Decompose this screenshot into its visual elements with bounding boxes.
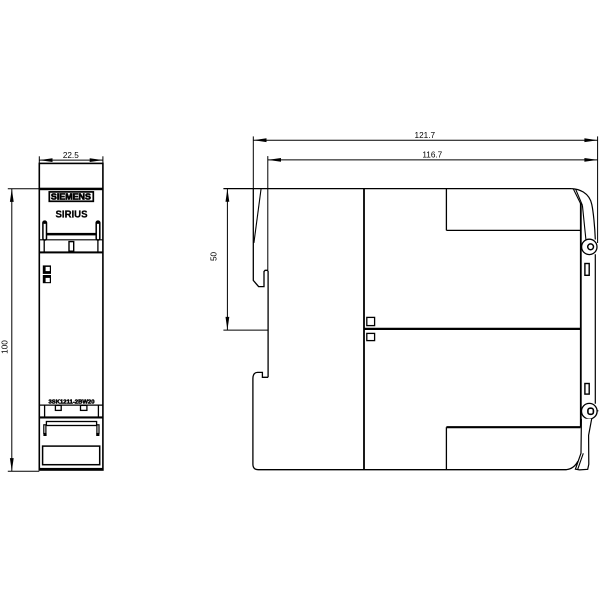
svg-text:SIEMENS: SIEMENS [51, 191, 91, 201]
svg-text:116.7: 116.7 [422, 151, 442, 160]
svg-text:50: 50 [209, 252, 218, 262]
svg-text:22.5: 22.5 [63, 151, 79, 160]
svg-text:121.7: 121.7 [415, 131, 436, 140]
svg-text:SIRIUS: SIRIUS [56, 208, 88, 220]
svg-text:100: 100 [1, 340, 10, 354]
